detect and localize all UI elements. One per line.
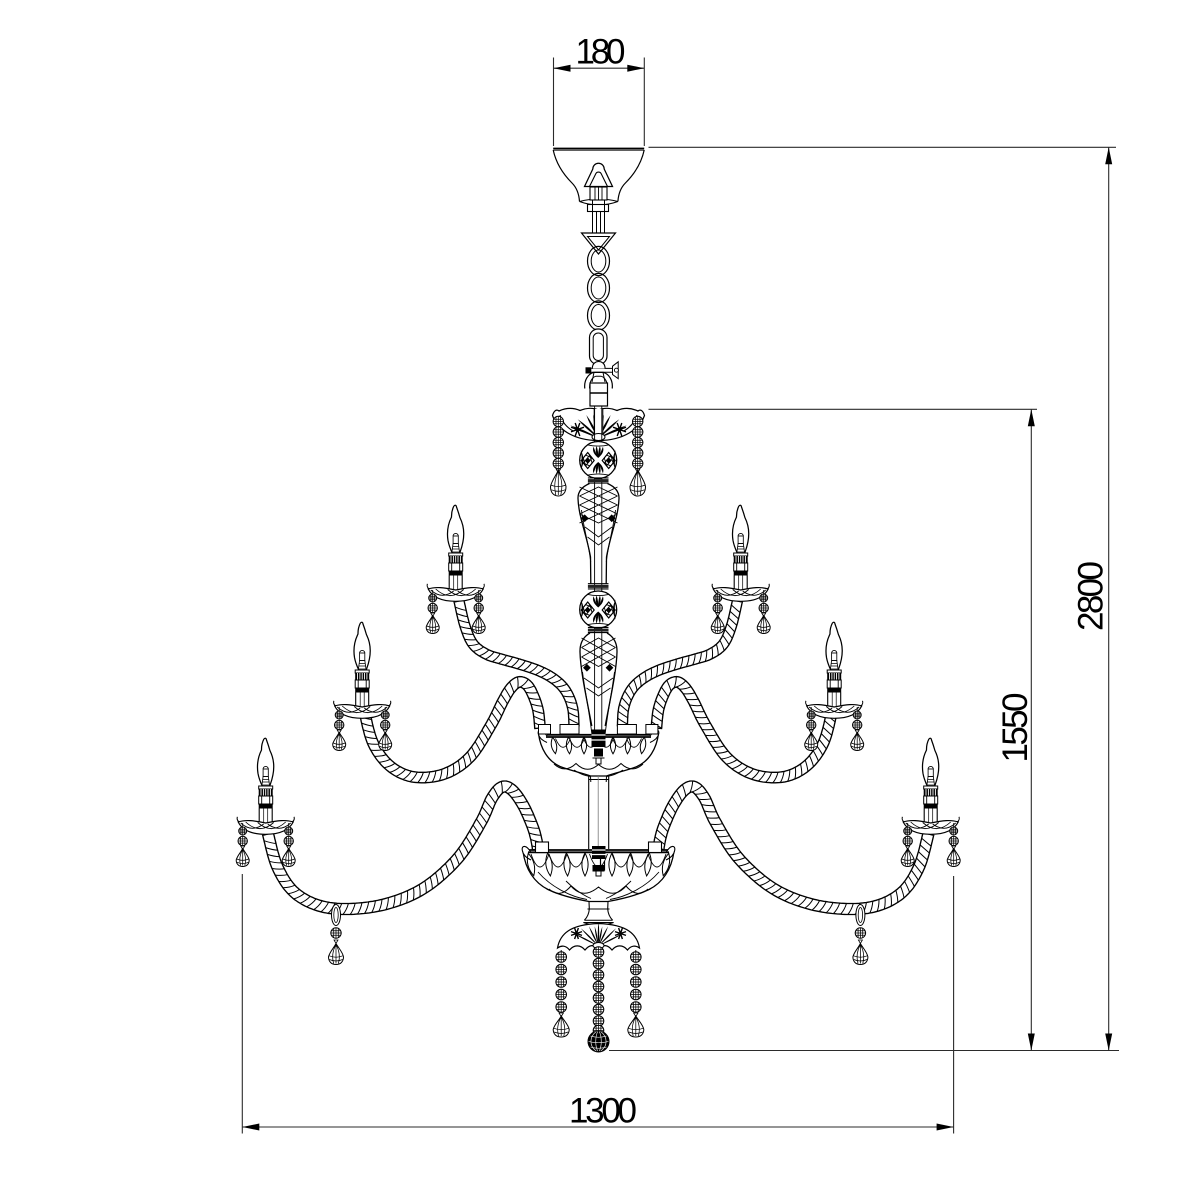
- svg-text:2800: 2800: [1072, 561, 1111, 631]
- svg-text:1550: 1550: [996, 693, 1035, 763]
- svg-text:180: 180: [576, 33, 626, 72]
- svg-text:1300: 1300: [569, 1092, 637, 1131]
